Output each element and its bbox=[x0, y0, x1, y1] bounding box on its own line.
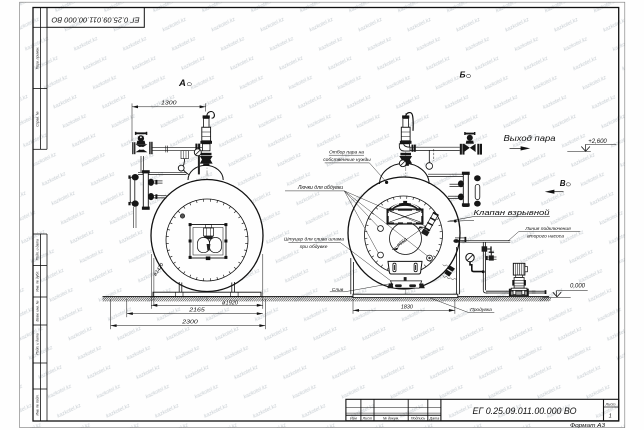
svg-text:собственные нужды: собственные нужды bbox=[323, 157, 371, 163]
svg-text:Клапан взрывной: Клапан взрывной bbox=[474, 208, 551, 217]
svg-text:Отбор пара на: Отбор пара на bbox=[329, 150, 364, 156]
svg-text:Подп. и дата: Подп. и дата bbox=[36, 333, 40, 354]
svg-text:Б: Б bbox=[460, 70, 466, 80]
svg-text:Перв. примен.: Перв. примен. bbox=[36, 47, 40, 70]
svg-text:Линия подключения: Линия подключения bbox=[524, 226, 571, 232]
svg-text:Дата: Дата bbox=[429, 417, 440, 421]
svg-text:Изм: Изм bbox=[350, 417, 357, 421]
svg-text:А: А bbox=[178, 78, 186, 89]
svg-text:ЕГ 0.25.09.011.00.000 ВО: ЕГ 0.25.09.011.00.000 ВО bbox=[52, 16, 140, 25]
svg-text:1300: 1300 bbox=[161, 101, 177, 107]
svg-text:Лист: Лист bbox=[604, 401, 616, 406]
svg-text:Формат А3: Формат А3 bbox=[570, 423, 605, 429]
svg-text:Выход пара: Выход пара bbox=[504, 133, 556, 143]
svg-text:2300: 2300 bbox=[181, 320, 198, 326]
svg-text:0,000: 0,000 bbox=[570, 284, 586, 290]
svg-text:Взам. инв. №: Взам. инв. № bbox=[36, 300, 40, 321]
svg-text:Инв. № дубл.: Инв. № дубл. bbox=[36, 271, 40, 292]
svg-text:ЕГ 0.25.09.011.00.000 ВО: ЕГ 0.25.09.011.00.000 ВО bbox=[473, 406, 577, 417]
svg-text:Инв. № подл.: Инв. № подл. bbox=[36, 394, 40, 415]
svg-text:Подп. и дата: Подп. и дата bbox=[36, 239, 40, 260]
svg-text:второго насоса: второго насоса bbox=[527, 235, 564, 240]
svg-text:2165: 2165 bbox=[188, 308, 206, 314]
svg-text:при обдувке: при обдувке bbox=[300, 244, 328, 250]
svg-text:Лист: Лист bbox=[362, 417, 373, 421]
svg-text:В: В bbox=[560, 179, 566, 188]
svg-text:1830: 1830 bbox=[401, 304, 413, 310]
svg-text:Лючки для обдувки: Лючки для обдувки bbox=[297, 185, 343, 191]
svg-text:Штуцер для слива шлама: Штуцер для слива шлама bbox=[284, 237, 344, 243]
svg-text:№ докум.: № докум. bbox=[383, 417, 399, 421]
svg-text:Справ. №: Справ. № bbox=[36, 111, 40, 127]
svg-text:Подпись: Подпись bbox=[411, 417, 426, 421]
svg-text:1: 1 bbox=[609, 414, 612, 420]
